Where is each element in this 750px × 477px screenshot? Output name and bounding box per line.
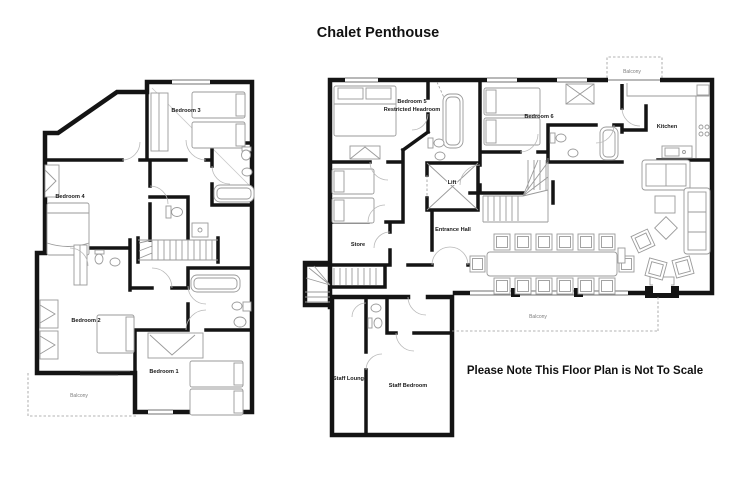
bathroom-top-right bbox=[214, 147, 254, 202]
room-label-bedroom-2: Bedroom 2 bbox=[71, 318, 100, 324]
room-label-balcony-left: Balcony bbox=[70, 393, 88, 399]
dining-table bbox=[470, 234, 634, 294]
scale-note: Please Note This Floor Plan is Not To Sc… bbox=[467, 365, 703, 377]
ensuite-bedroom2 bbox=[74, 245, 120, 285]
balcony-bottom-outline bbox=[452, 296, 658, 331]
room-label-bedroom-5: Bedroom 5 bbox=[397, 99, 426, 105]
room-label-bedroom-6: Bedroom 6 bbox=[524, 114, 553, 120]
room-label-kitchen: Kitchen bbox=[657, 124, 678, 130]
floor-plan-svg: Bedroom 3 Bedroom 4 Bedroom 2 Bedroom 1 … bbox=[0, 0, 750, 477]
ensuite-bedroom1 bbox=[191, 275, 251, 327]
bedroom3-furniture bbox=[151, 92, 245, 151]
stairs bbox=[138, 240, 218, 260]
twin-room-furniture bbox=[332, 169, 374, 223]
room-label-store: Store bbox=[351, 242, 365, 248]
room-label-entrance-hall: Entrance Hall bbox=[435, 227, 471, 233]
room-label-balcony-bottom: Balcony bbox=[529, 314, 547, 320]
staff-bathroom bbox=[368, 304, 382, 328]
bedroom4-furniture bbox=[45, 165, 89, 255]
room-label-balcony-top: Balcony bbox=[623, 69, 641, 75]
floor-plan-page: Bedroom 3 Bedroom 4 Bedroom 2 Bedroom 1 … bbox=[0, 0, 750, 477]
room-label-bedroom-1: Bedroom 1 bbox=[149, 369, 178, 375]
lift bbox=[427, 163, 478, 210]
room-label-lift: Lift bbox=[448, 180, 457, 186]
room-label-bedroom-3: Bedroom 3 bbox=[171, 108, 200, 114]
left-plan: Bedroom 3 Bedroom 4 Bedroom 2 Bedroom 1 … bbox=[28, 78, 254, 416]
page-title: Chalet Penthouse bbox=[317, 25, 439, 41]
room-label-staff-bedroom: Staff Bedroom bbox=[389, 383, 428, 389]
bathroom-a bbox=[428, 94, 463, 160]
kitchen-furniture bbox=[627, 83, 710, 158]
main-stairs bbox=[483, 158, 548, 222]
room-label-staff-lounge: Staff Lounge bbox=[333, 376, 367, 382]
bathroom-b bbox=[550, 127, 618, 160]
right-plan: Bedroom 5 Restricted Headroom Bedroom 6 … bbox=[305, 57, 712, 435]
bedroom2-furniture bbox=[40, 300, 134, 359]
room-label-bedroom-5-note: Restricted Headroom bbox=[384, 107, 441, 113]
room-label-bedroom-4: Bedroom 4 bbox=[55, 194, 85, 200]
